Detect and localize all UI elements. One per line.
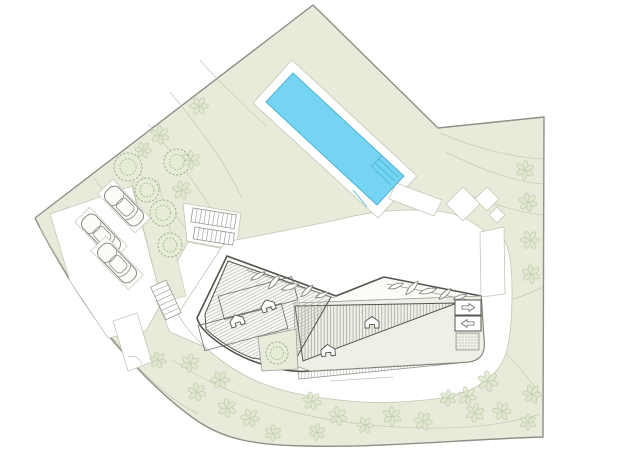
- tree-canopy-outer: [150, 200, 176, 226]
- tree-detailed: [150, 200, 176, 226]
- tree-canopy-outer: [158, 233, 182, 257]
- roof-access-box: [455, 300, 481, 315]
- tree-canopy-outer: [114, 153, 142, 181]
- tree-detailed: [266, 342, 288, 364]
- site-plan-drawing: [0, 0, 640, 452]
- gravel-patch: [456, 333, 479, 350]
- site-plan-canvas: [0, 0, 640, 452]
- walkway-vertical: [480, 227, 505, 297]
- tree-detailed: [135, 178, 159, 202]
- tree-detailed: [114, 153, 142, 181]
- tree-canopy-outer: [266, 342, 288, 364]
- tree-canopy-outer: [135, 178, 159, 202]
- tree-detailed: [158, 233, 182, 257]
- roof-access-box: [455, 316, 481, 331]
